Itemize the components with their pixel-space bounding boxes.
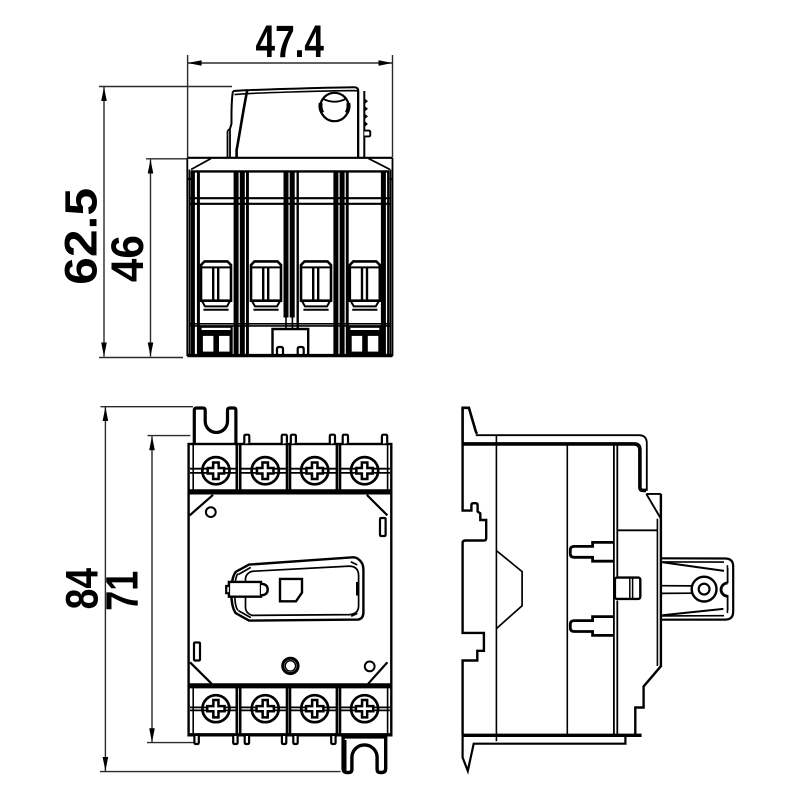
svg-text:46: 46 bbox=[102, 235, 153, 282]
svg-text:71: 71 bbox=[96, 571, 147, 611]
svg-text:47.4: 47.4 bbox=[256, 16, 325, 67]
svg-text:62.5: 62.5 bbox=[55, 188, 106, 285]
